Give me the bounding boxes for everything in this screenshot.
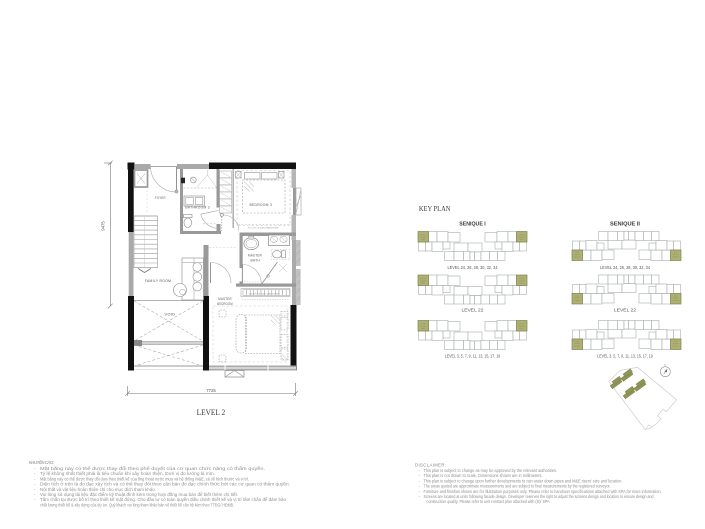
svg-text:BEDROOM: BEDROOM [217, 302, 233, 306]
svg-text:BATHROOM 3: BATHROOM 3 [185, 206, 210, 210]
svg-text:FAMILY ROOM: FAMILY ROOM [145, 279, 172, 283]
svg-text:LEVEL 2: LEVEL 2 [197, 408, 226, 417]
svg-text:VOID: VOID [165, 313, 176, 317]
svg-text:chất lượng thiết kế & xây dựng: chất lượng thiết kế & xây dựng của dự án… [40, 502, 234, 507]
svg-text:LEVEL 24, 26, 28, 30, 32, 34: LEVEL 24, 26, 28, 30, 32, 34 [600, 265, 650, 270]
svg-text:KHUYẾN CÁO:: KHUYẾN CÁO: [29, 460, 54, 465]
svg-text:N: N [664, 363, 666, 367]
svg-text:-: - [34, 497, 36, 502]
svg-text:BATH: BATH [251, 259, 261, 263]
svg-text:KEY PLAN: KEY PLAN [419, 204, 451, 213]
svg-text:7725: 7725 [206, 388, 216, 393]
svg-text:LEVEL 3, 5, 7, 9, 11, 13, 15,: LEVEL 3, 5, 7, 9, 11, 13, 15, 17, 19 [597, 354, 653, 359]
svg-text:LEVEL 22: LEVEL 22 [614, 308, 637, 313]
svg-text:FULL HT. SLIDING WARDROBE: FULL HT. SLIDING WARDROBE [248, 227, 279, 230]
svg-text:LEVEL 22: LEVEL 22 [462, 308, 485, 313]
svg-text:-: - [419, 494, 421, 499]
svg-text:LEVEL 3, 5, 7, 9, 11, 13, 15,: LEVEL 3, 5, 7, 9, 11, 13, 15, 17, 19 [445, 354, 501, 359]
svg-text:FULL HT. SLIDING WARDROBE: FULL HT. SLIDING WARDROBE [249, 293, 280, 296]
svg-text:9475: 9475 [101, 221, 106, 231]
svg-text:FOYER: FOYER [155, 196, 166, 200]
svg-text:BEDROOM 3: BEDROOM 3 [250, 203, 273, 207]
svg-text:SENIQUE II: SENIQUE II [610, 222, 641, 228]
svg-text:DISCLAIMER:: DISCLAIMER: [415, 463, 446, 468]
svg-text:construction quality. Please r: construction quality. Please refer to un… [427, 499, 551, 504]
svg-text:MASTER: MASTER [248, 254, 262, 258]
svg-text:MASTER: MASTER [218, 297, 232, 301]
svg-text:LEVEL 24, 26, 28, 30, 32, 34: LEVEL 24, 26, 28, 30, 32, 34 [448, 265, 498, 270]
svg-text:SENIQUE I: SENIQUE I [459, 222, 486, 228]
